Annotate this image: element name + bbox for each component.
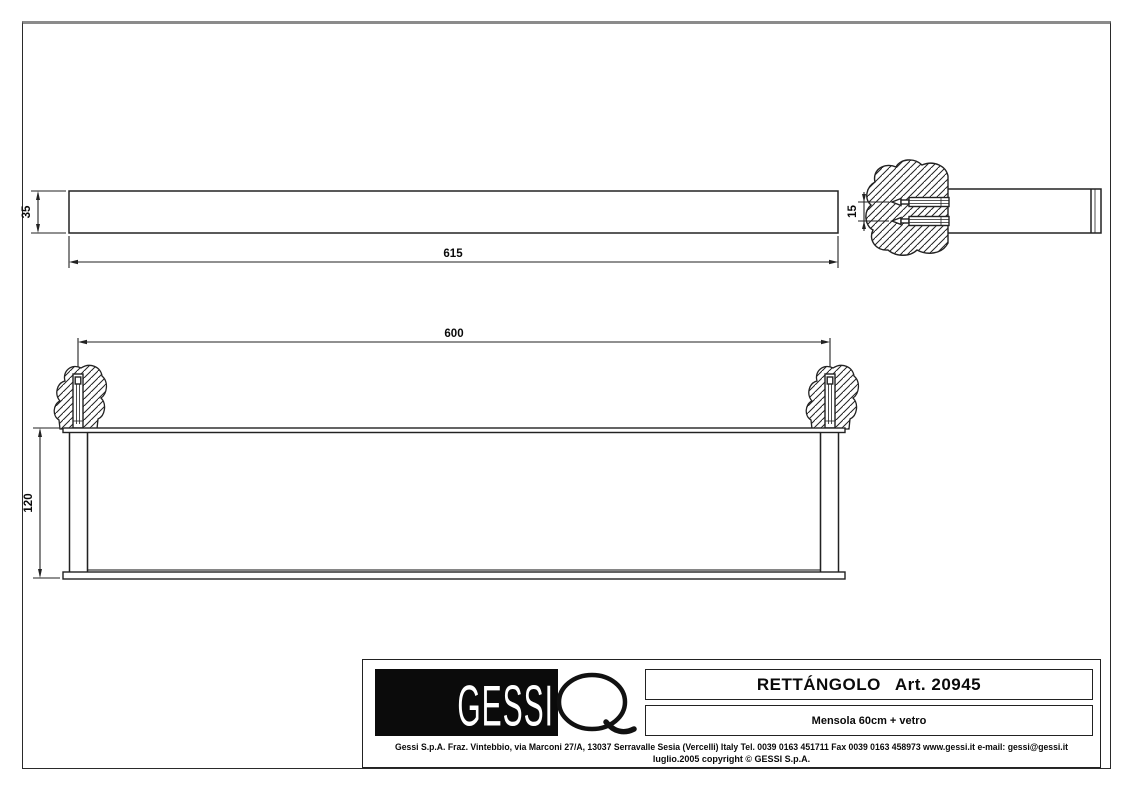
- product-name: RETTÁNGOLO: [757, 675, 881, 695]
- logo-q-tail: [606, 722, 634, 732]
- glass-panel: [88, 433, 821, 571]
- article-number: Art. 20945: [895, 675, 981, 695]
- wall-bracket: [54, 365, 106, 429]
- wall-bracket-right: [806, 365, 858, 429]
- company-info: Gessi S.p.A. Fraz. Vintebbio, via Marcon…: [365, 741, 1098, 765]
- product-title-box: RETTÁNGOLO Art. 20945: [645, 669, 1093, 700]
- logo-wordmark: GESSI: [457, 673, 554, 738]
- product-subtitle: Mensola 60cm + vetro: [812, 715, 927, 727]
- anchor-screw-upper: [892, 198, 949, 207]
- shelf-top-rail: [63, 428, 845, 433]
- product-subtitle-box: Mensola 60cm + vetro: [645, 705, 1093, 736]
- side-elevation-view: 35 615: [21, 191, 838, 268]
- dimension-35: 35: [21, 191, 66, 233]
- dim-15-label: 15: [847, 205, 859, 218]
- dim-600-label: 600: [444, 328, 463, 340]
- gessi-logo: GESSI: [375, 669, 655, 738]
- wall-section-hatch: [866, 160, 948, 255]
- dim-35-label: 35: [21, 205, 33, 218]
- dimension-615: 615: [69, 236, 838, 268]
- copyright-line: luglio.2005 copyright © GESSI S.p.A.: [365, 753, 1098, 765]
- drawing-sheet: 35 615: [0, 0, 1123, 793]
- wall-anchor-detail-view: 15: [847, 160, 1101, 255]
- title-block: GESSI RETTÁNGOLO Art. 20945 Mensola 60cm…: [362, 659, 1101, 768]
- shelf-bottom-rail: [63, 572, 845, 579]
- dimension-600: 600: [78, 328, 830, 370]
- anchor-screw-lower: [892, 217, 949, 226]
- logo-q-icon: [559, 675, 625, 729]
- company-address-line: Gessi S.p.A. Fraz. Vintebbio, via Marcon…: [380, 741, 1084, 753]
- dim-120-label: 120: [23, 493, 35, 512]
- dimension-120: 120: [23, 428, 60, 578]
- front-elevation-view: 600: [23, 328, 858, 579]
- dim-615-label: 615: [443, 248, 463, 260]
